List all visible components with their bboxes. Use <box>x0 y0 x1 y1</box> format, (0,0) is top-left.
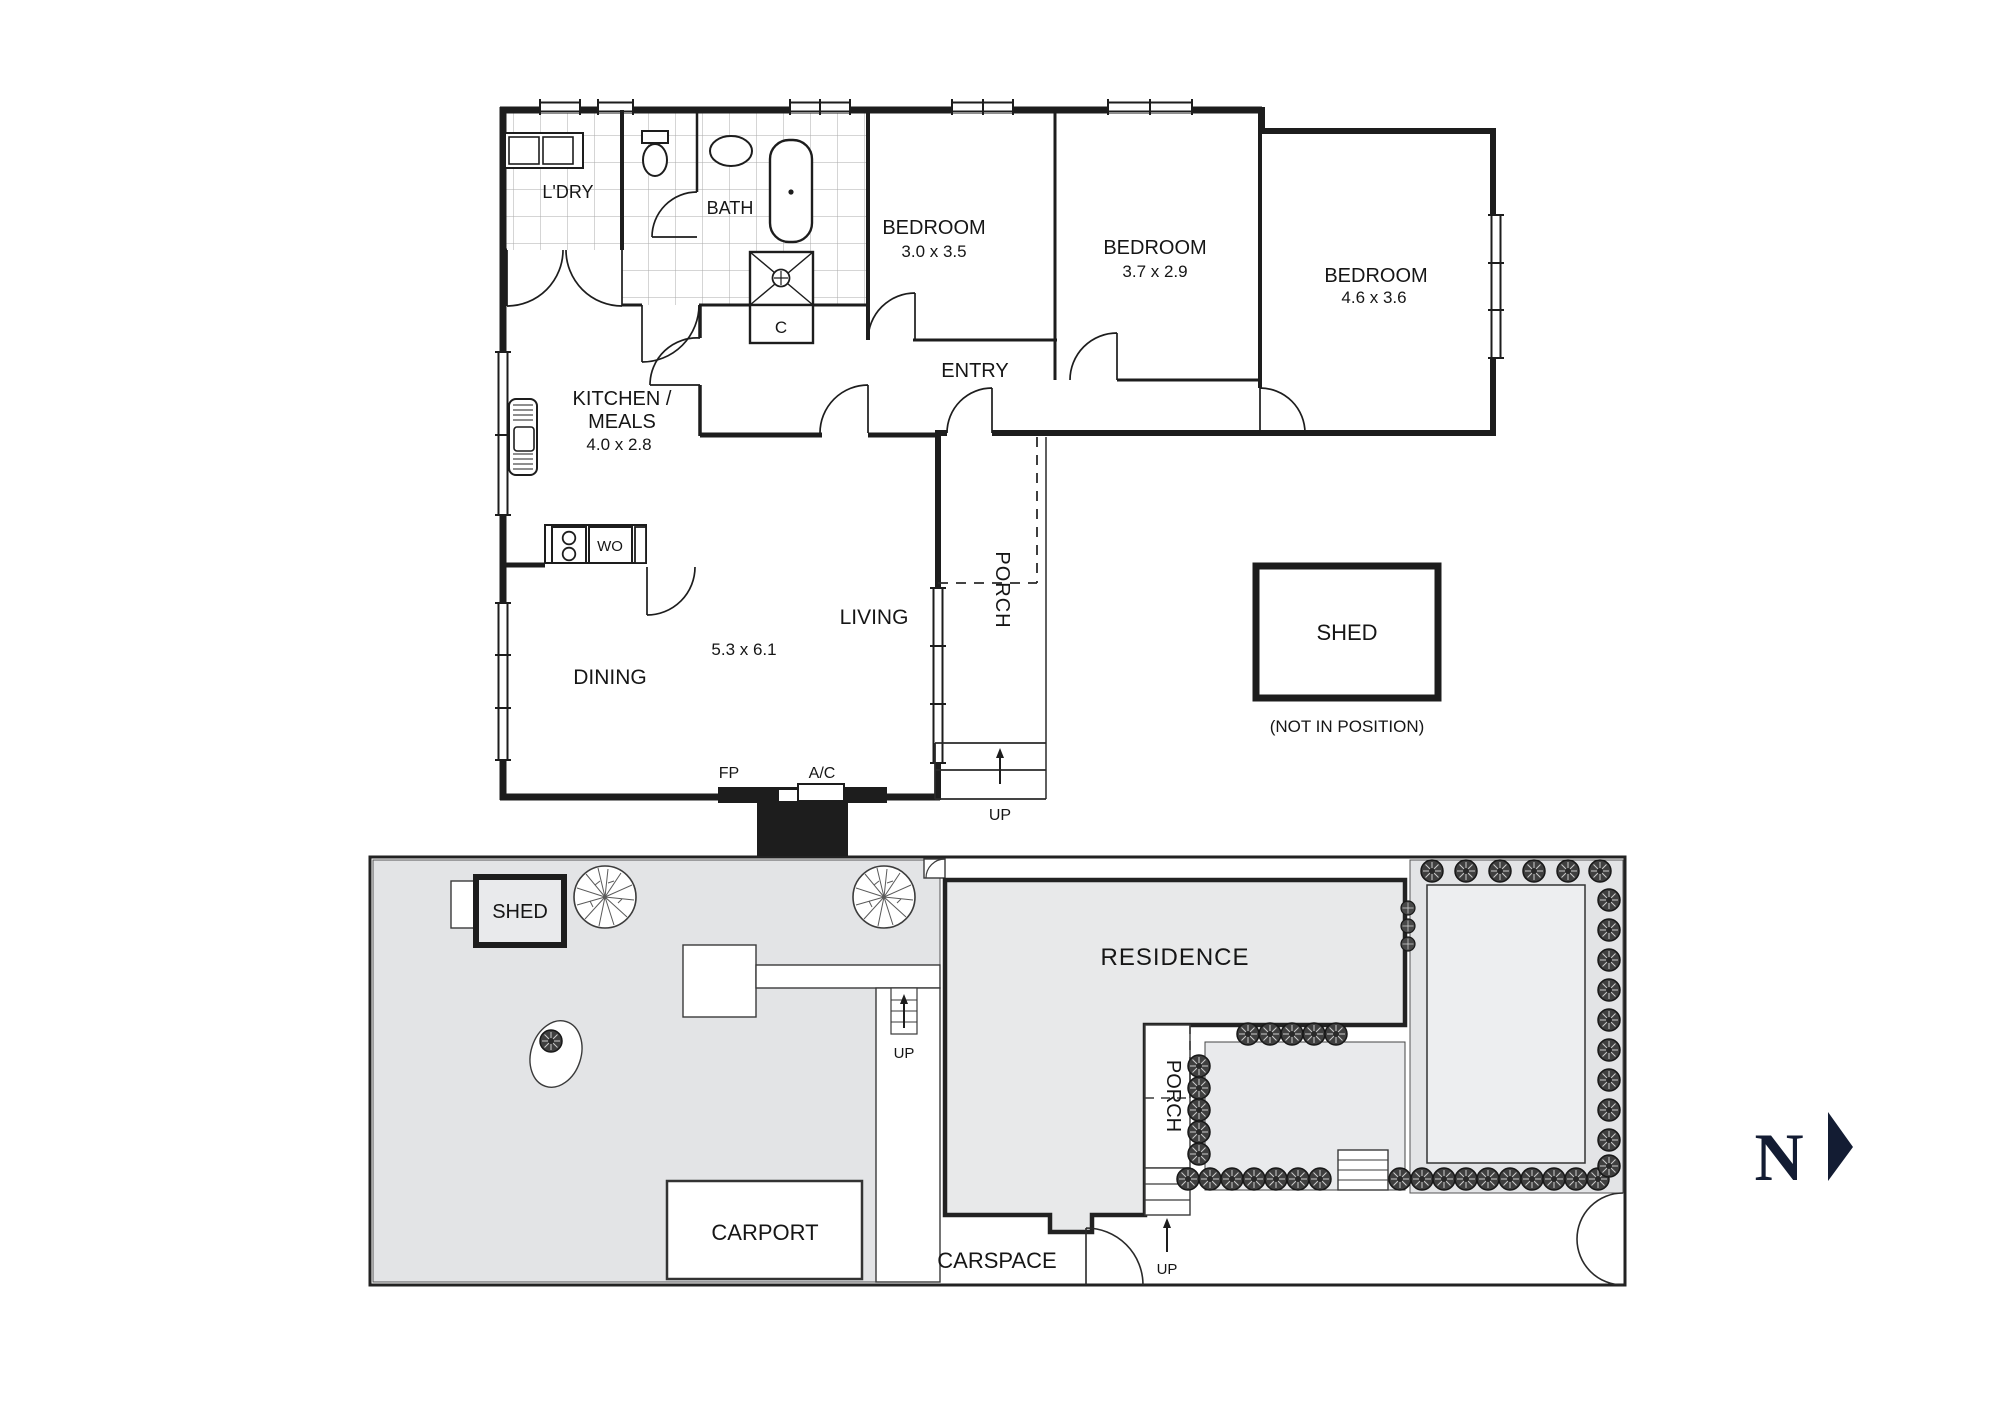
front-lawn <box>1427 885 1585 1163</box>
laundry-bench <box>505 133 583 168</box>
porch-steps <box>935 743 1046 799</box>
ac-label: A/C <box>809 765 836 782</box>
bedroom2-dims: 3.7 x 2.9 <box>1122 262 1187 281</box>
basin-icon <box>710 136 752 166</box>
closet-label: C <box>775 318 787 337</box>
residence-label: RESIDENCE <box>1100 944 1249 971</box>
fireplace-label: FP <box>719 765 739 782</box>
bath-label: BATH <box>707 198 754 218</box>
toilet-icon <box>642 131 668 176</box>
floor-plan: C WO FP A/C <box>495 99 1504 856</box>
carspace-label: CARSPACE <box>937 1248 1056 1273</box>
site-shed-label: SHED <box>492 901 548 923</box>
wall-oven-label: WO <box>597 538 623 555</box>
kitchen-label-line1: KITCHEN / <box>573 388 672 410</box>
kitchen-counter: WO <box>545 525 646 563</box>
dining-label: DINING <box>573 666 647 689</box>
plan-up-label: UP <box>989 807 1011 824</box>
plan-shed-note: (NOT IN POSITION) <box>1270 717 1425 736</box>
carport-label: CARPORT <box>711 1220 818 1245</box>
hedge-row-inner-top <box>1237 1023 1347 1045</box>
kitchen-dims: 4.0 x 2.8 <box>586 435 651 454</box>
north-label: N <box>1754 1119 1803 1195</box>
ac-unit-icon: A/C <box>798 765 844 801</box>
window-bedroom3 <box>1488 215 1504 358</box>
driveway-up-label: UP <box>894 1045 915 1062</box>
shower-icon <box>750 252 813 305</box>
floorplan-page: UP SHED CARPORT RESIDENCE <box>0 0 2000 1413</box>
plan-porch-label: PORCH <box>991 551 1013 628</box>
window-living-porch <box>930 588 946 763</box>
living-label: LIVING <box>840 606 909 629</box>
bathtub-icon <box>770 140 812 242</box>
hedge-col-porch <box>1188 1055 1210 1165</box>
site-plan: UP SHED CARPORT RESIDENCE <box>370 857 1625 1285</box>
carport-box: CARPORT <box>667 1181 862 1279</box>
closet: C <box>750 305 813 343</box>
bedroom2-label: BEDROOM <box>1103 237 1206 259</box>
driveway-steps: UP <box>891 988 917 1062</box>
tree-icon <box>574 866 636 928</box>
laundry-label: L'DRY <box>542 182 593 202</box>
bedroom3-dims: 4.6 x 3.6 <box>1341 288 1406 307</box>
up-arrow-icon <box>996 748 1004 758</box>
kitchen-label-line2: MEALS <box>588 411 656 433</box>
site-porch-label: PORCH <box>1162 1060 1184 1132</box>
living-dims: 5.3 x 6.1 <box>711 640 776 659</box>
plan-shed-label: SHED <box>1316 620 1377 645</box>
floorplan-canvas: UP SHED CARPORT RESIDENCE <box>0 0 2000 1413</box>
fireplace-icon: FP <box>718 765 887 856</box>
north-arrow-icon <box>1828 1112 1853 1181</box>
north-compass: N <box>1754 1112 1853 1195</box>
tree-icon <box>853 866 915 928</box>
plan-shed: SHED (NOT IN POSITION) <box>1256 566 1438 736</box>
plan-porch: PORCH UP <box>935 437 1046 824</box>
kitchen-sink-icon <box>509 399 537 475</box>
bedroom1-label: BEDROOM <box>882 217 985 239</box>
laundry-tiles <box>503 110 622 250</box>
entry-label: ENTRY <box>941 360 1008 382</box>
bedroom3-label: BEDROOM <box>1324 265 1427 287</box>
garden-steps <box>1338 1150 1388 1190</box>
bedroom1-dims: 3.0 x 3.5 <box>901 242 966 261</box>
site-porch-up-label: UP <box>1157 1261 1178 1278</box>
hedge-small-wall <box>1401 901 1415 951</box>
